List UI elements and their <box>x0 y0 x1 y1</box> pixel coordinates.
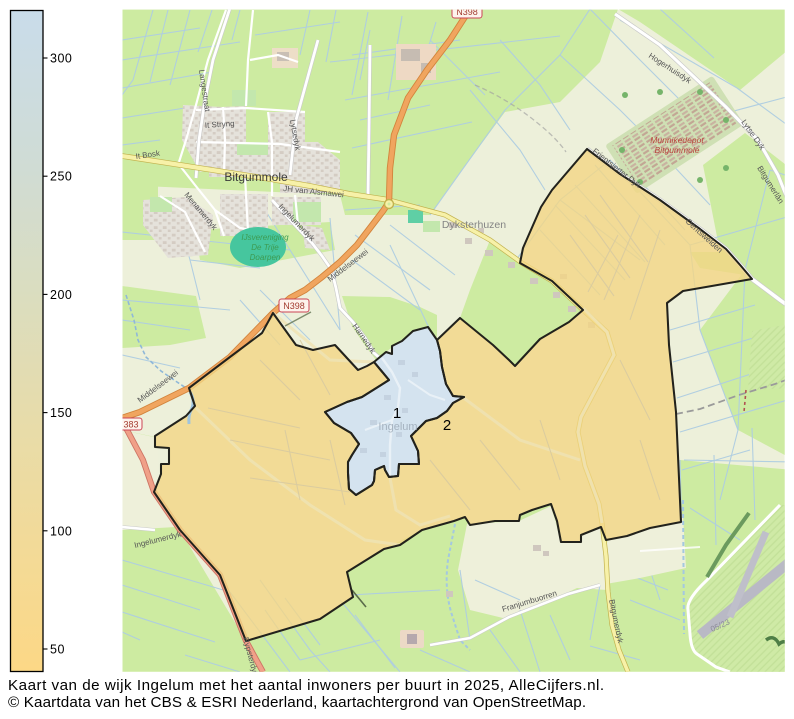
svg-text:IJsvereniging: IJsvereniging <box>241 233 289 242</box>
svg-text:De Trije: De Trije <box>251 243 279 252</box>
svg-text:150: 150 <box>50 406 72 420</box>
svg-text:1: 1 <box>393 405 401 422</box>
svg-text:Bitgummole: Bitgummole <box>655 145 700 155</box>
svg-text:Kaart van de wijk Ingelum met: Kaart van de wijk Ingelum met het aantal… <box>8 677 605 694</box>
svg-text:Ingelum: Ingelum <box>378 421 417 433</box>
svg-text:50: 50 <box>50 643 65 657</box>
svg-text:Munnikedepot: Munnikedepot <box>650 135 704 145</box>
svg-text:383: 383 <box>123 420 138 430</box>
svg-text:Dyksterhuzen: Dyksterhuzen <box>442 219 506 231</box>
svg-text:Bitgummole: Bitgummole <box>224 170 288 184</box>
svg-text:N398: N398 <box>283 301 305 311</box>
svg-text:© Kaartdata van het CBS & ESRI: © Kaartdata van het CBS & ESRI Nederland… <box>8 694 586 711</box>
svg-text:100: 100 <box>50 524 72 538</box>
svg-text:200: 200 <box>50 288 72 302</box>
svg-text:300: 300 <box>50 52 72 66</box>
svg-text:250: 250 <box>50 170 72 184</box>
svg-text:Doarpen: Doarpen <box>250 253 281 262</box>
svg-text:2: 2 <box>443 417 451 434</box>
